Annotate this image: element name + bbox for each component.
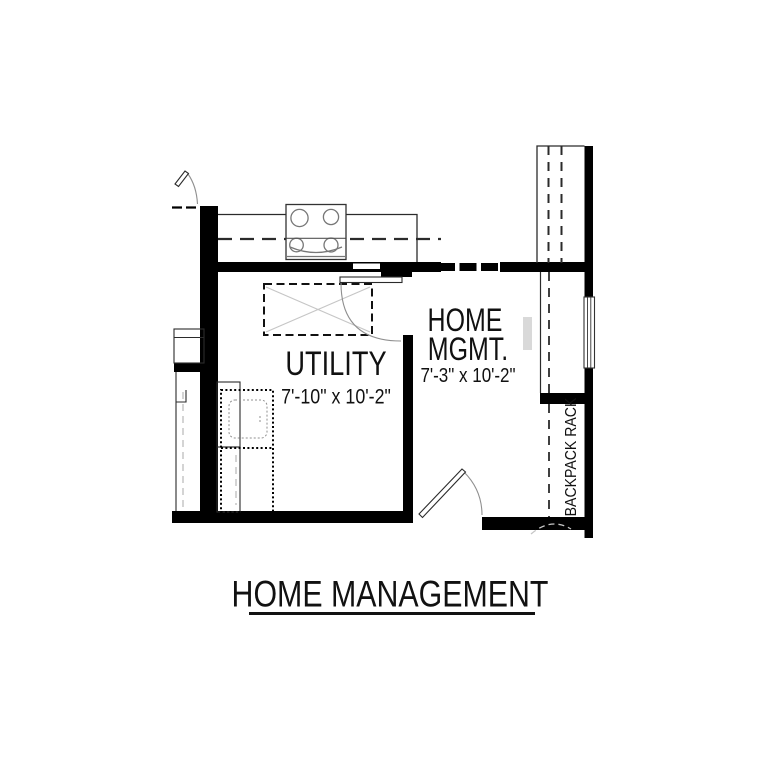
wall-divider (403, 335, 413, 523)
door-leaf (340, 277, 402, 283)
door-home-mgmt (419, 469, 482, 518)
plan-title-underline (249, 612, 535, 615)
cabinet-dashed-box (264, 284, 372, 335)
door-swing-arc (464, 472, 482, 515)
room-label-home-mgmt-line2: MGMT. (428, 333, 508, 365)
desk-chair-icon (523, 317, 532, 350)
door-leaf (419, 469, 466, 518)
window-icon (584, 297, 595, 368)
wall-niche (353, 264, 380, 270)
room-label-utility: UTILITY (285, 347, 386, 381)
washer-dryer-icon (217, 382, 273, 512)
backpack-rack-label: BACKPACK RACK (564, 398, 580, 517)
door-swing-arc (188, 174, 198, 204)
door-leaf (175, 171, 189, 187)
wall-door-header (381, 262, 412, 277)
left-chase (174, 329, 204, 511)
stairs (537, 146, 585, 263)
wall-bottom-utility (172, 511, 413, 523)
floor-plan-drawing (0, 0, 768, 768)
room-dims-utility: 7'-10" x 10'-2" (281, 387, 391, 408)
room-dims-home-mgmt: 7'-3" x 10'-2" (420, 366, 515, 386)
wall-left-band (174, 363, 204, 372)
door-top-left (172, 171, 198, 208)
wall-top-home-mgmt (500, 262, 593, 272)
floor-plan-image: UTILITY 7'-10" x 10'-2" HOME MGMT. 7'-3"… (0, 0, 768, 768)
wall-bottom-home-mgmt (482, 517, 593, 530)
cooktop-icon (286, 205, 346, 260)
plan-title: HOME MANAGEMENT (232, 576, 549, 613)
